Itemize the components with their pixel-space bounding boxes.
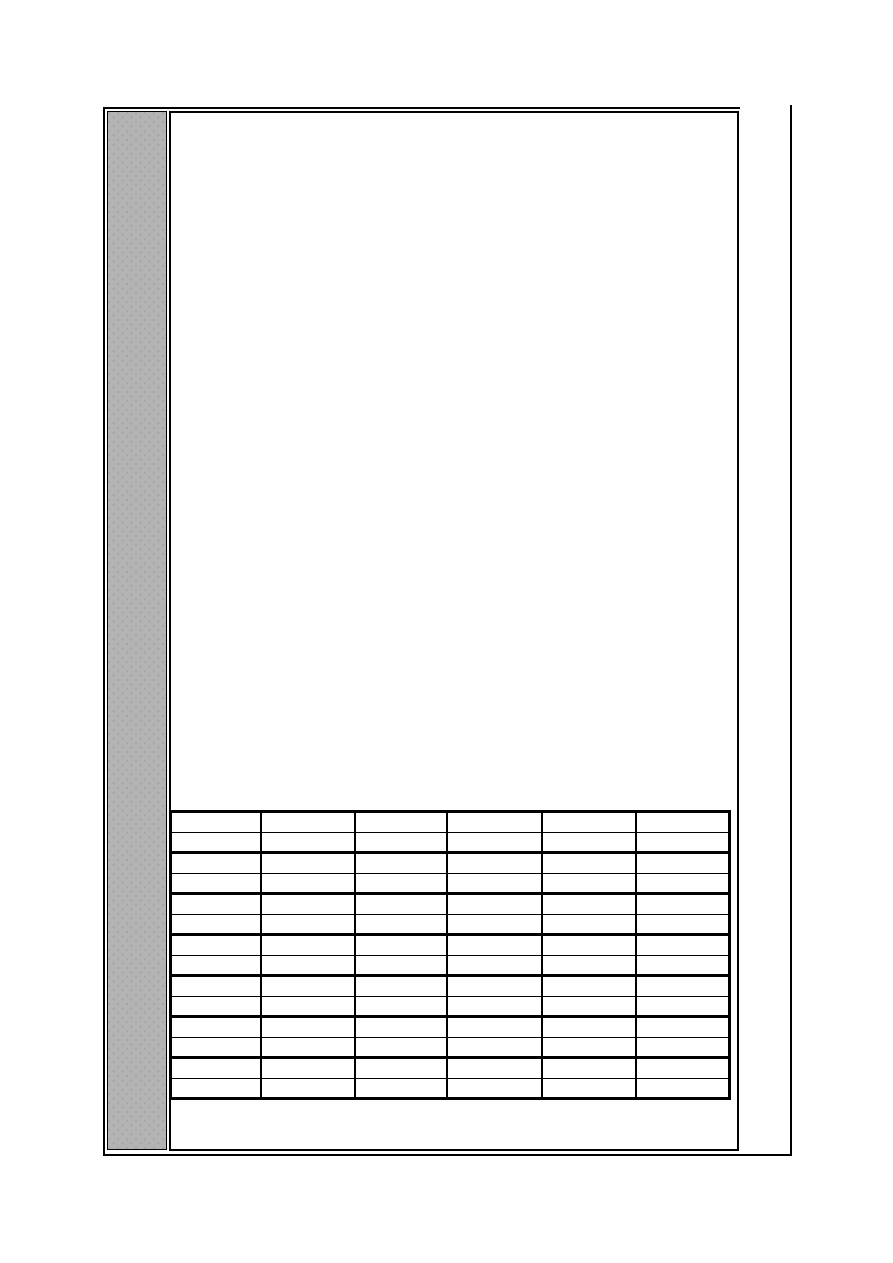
table-cell (542, 914, 636, 935)
table-cell (447, 914, 542, 935)
table-cell (636, 955, 730, 976)
table-cell (261, 812, 355, 833)
table-cell (171, 955, 261, 976)
table-cell (261, 1078, 355, 1099)
table-cell (261, 976, 355, 997)
table-cell (355, 894, 447, 915)
table-cell (355, 1017, 447, 1038)
table-cell (542, 955, 636, 976)
table-cell (261, 1017, 355, 1038)
table-cell (542, 976, 636, 997)
table-cell (171, 1078, 261, 1099)
table-cell (636, 976, 730, 997)
table-cell (447, 1017, 542, 1038)
table-cell (171, 996, 261, 1017)
table-cell (447, 873, 542, 894)
table-cell (355, 914, 447, 935)
table-cell (447, 812, 542, 833)
table-cell (261, 1037, 355, 1058)
table-cell (447, 1078, 542, 1099)
page-frame-left-line (103, 107, 105, 1156)
table-cell (542, 935, 636, 956)
table-cell (636, 996, 730, 1017)
table-cell (542, 1037, 636, 1058)
page-frame-bottom-line (103, 1154, 792, 1156)
table-cell (636, 1037, 730, 1058)
table-cell (447, 955, 542, 976)
table-cell (355, 955, 447, 976)
table-cell (355, 1058, 447, 1079)
table-cell (261, 853, 355, 874)
table-cell (542, 1058, 636, 1079)
table-cell (447, 976, 542, 997)
table-row (171, 976, 730, 997)
table-cell (171, 832, 261, 853)
table-cell (261, 1058, 355, 1079)
page-frame-top-line (103, 107, 740, 109)
table-cell (636, 832, 730, 853)
table-row (171, 935, 730, 956)
table-cell (542, 1078, 636, 1099)
table-cell (447, 853, 542, 874)
table-cell (447, 935, 542, 956)
table-cell (171, 873, 261, 894)
table-cell (261, 873, 355, 894)
table-row (171, 832, 730, 853)
table-cell (171, 976, 261, 997)
table-cell (447, 1037, 542, 1058)
table-cell (355, 976, 447, 997)
table-cell (355, 1037, 447, 1058)
table-cell (261, 894, 355, 915)
table-cell (542, 853, 636, 874)
table-row (171, 812, 730, 833)
table-cell (171, 1017, 261, 1038)
table-cell (171, 1037, 261, 1058)
table-row (171, 1037, 730, 1058)
table-cell (447, 1058, 542, 1079)
page-frame-right-line (790, 105, 792, 1156)
table-cell (171, 894, 261, 915)
table-cell (636, 935, 730, 956)
table-cell (636, 853, 730, 874)
table-cell (636, 1078, 730, 1099)
empty-data-table-container (169, 810, 731, 1100)
table-cell (171, 935, 261, 956)
table-row (171, 1078, 730, 1099)
table-row (171, 873, 730, 894)
table-cell (636, 812, 730, 833)
empty-data-table (169, 810, 731, 1100)
table-cell (171, 1058, 261, 1079)
table-cell (355, 935, 447, 956)
table-cell (636, 894, 730, 915)
table-cell (636, 1058, 730, 1079)
table-cell (171, 812, 261, 833)
table-cell (261, 914, 355, 935)
table-row (171, 1017, 730, 1038)
table-row (171, 894, 730, 915)
table-row (171, 996, 730, 1017)
table-cell (542, 873, 636, 894)
table-cell (542, 996, 636, 1017)
table-cell (355, 873, 447, 894)
table-cell (636, 914, 730, 935)
document-page (0, 0, 893, 1263)
table-cell (171, 853, 261, 874)
table-cell (355, 1078, 447, 1099)
table-cell (542, 894, 636, 915)
table-cell (355, 996, 447, 1017)
table-row (171, 1058, 730, 1079)
table-cell (261, 996, 355, 1017)
sidebar-gray-stipple-panel (107, 111, 167, 1150)
table-row (171, 955, 730, 976)
table-cell (447, 832, 542, 853)
table-cell (447, 996, 542, 1017)
table-cell (542, 1017, 636, 1038)
table-cell (355, 832, 447, 853)
table-cell (355, 812, 447, 833)
table-cell (355, 853, 447, 874)
table-cell (171, 914, 261, 935)
table-cell (636, 873, 730, 894)
table-cell (447, 894, 542, 915)
table-cell (261, 832, 355, 853)
table-cell (542, 832, 636, 853)
table-cell (542, 812, 636, 833)
table-row (171, 914, 730, 935)
table-row (171, 853, 730, 874)
table-cell (636, 1017, 730, 1038)
table-cell (261, 935, 355, 956)
table-cell (261, 955, 355, 976)
